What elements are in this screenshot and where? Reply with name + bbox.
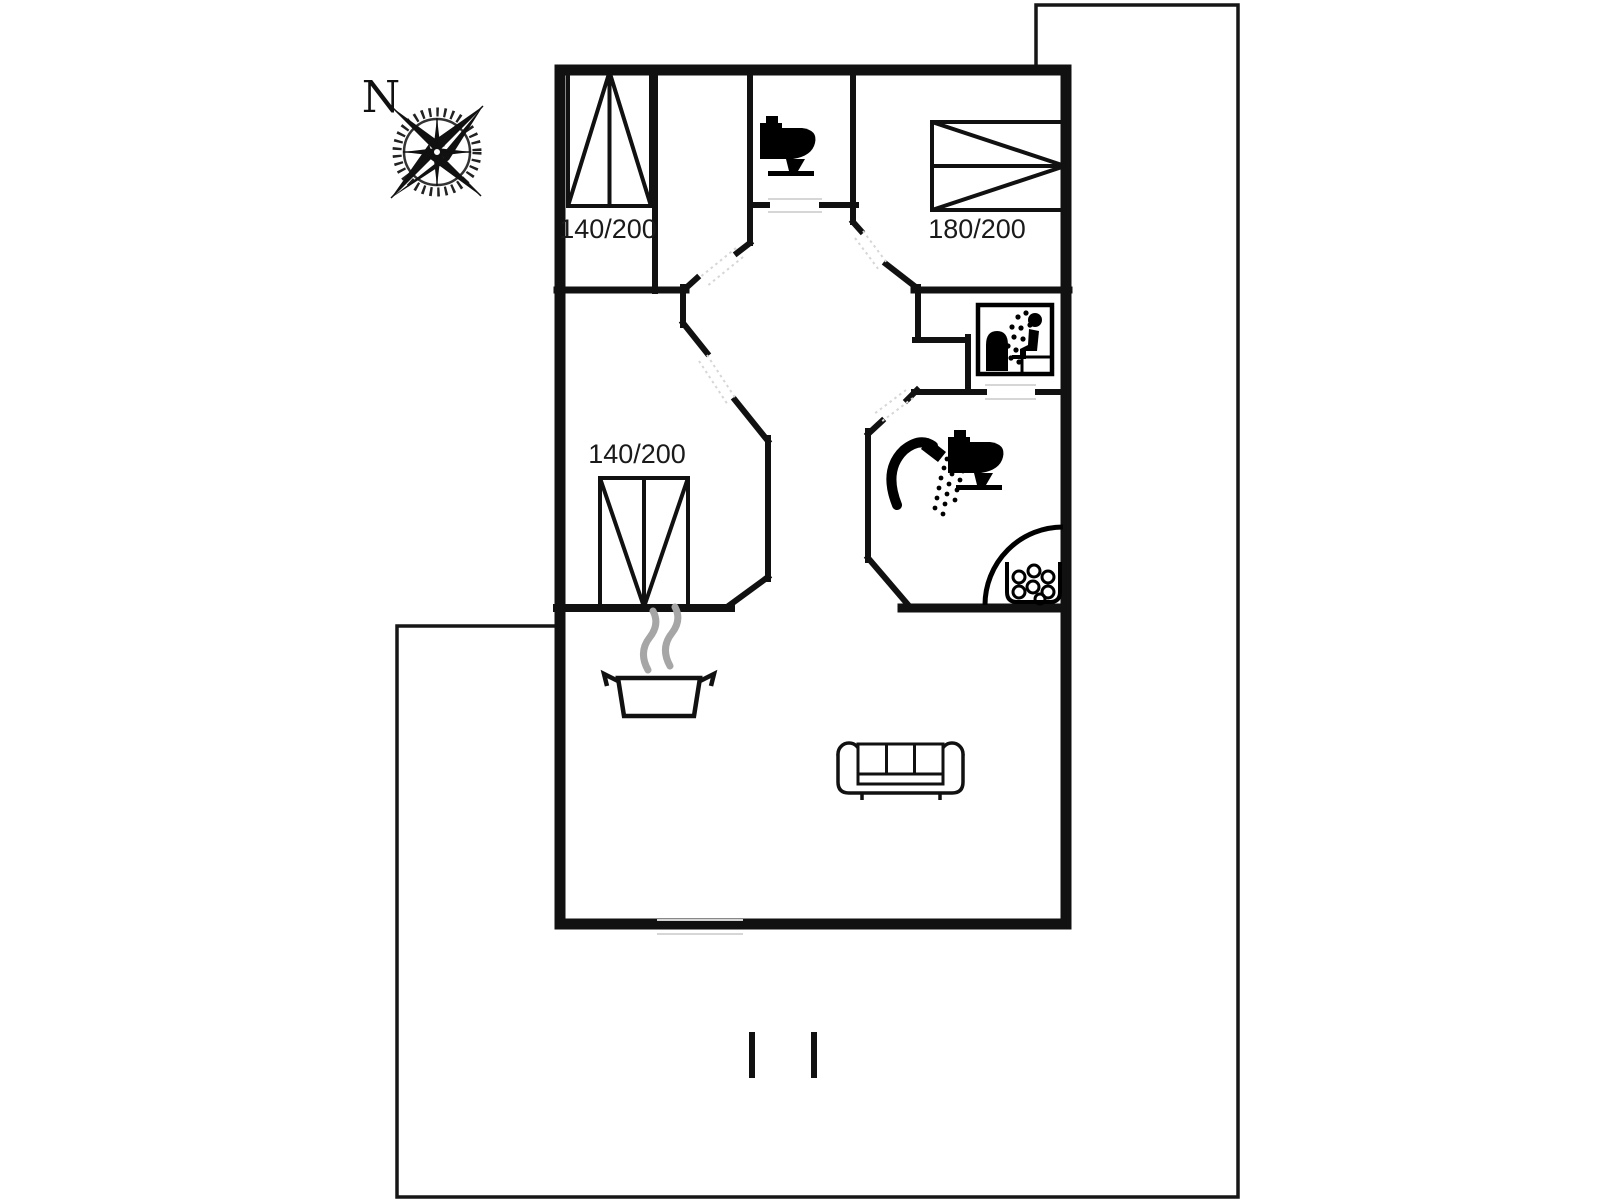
bed-icon-middle-left (600, 478, 688, 607)
bed-size-label-top-left: 140/200 (559, 214, 657, 244)
terrace-step-marks (752, 1032, 814, 1078)
hot-tub-icon (985, 527, 1063, 605)
floor-plan-page: 140/200 140/200 180/200 (0, 0, 1600, 1200)
bed-size-label-middle-left: 140/200 (588, 439, 686, 469)
toilet-icon-top (760, 116, 815, 176)
bed-icon-top-right (932, 122, 1065, 210)
bed-size-label-top-right: 180/200 (928, 214, 1026, 244)
stove-pot-icon (604, 607, 714, 716)
floor-plan-drawing: 140/200 140/200 180/200 (0, 0, 1600, 1200)
compass-north-label: N (362, 72, 401, 123)
bed-icon-top-left (568, 72, 651, 206)
compass-rose-icon (391, 106, 483, 198)
sauna-icon (978, 305, 1052, 374)
deck-outline (397, 5, 1238, 1197)
toilet-icon-bathroom (948, 430, 1003, 490)
sofa-icon (838, 743, 963, 800)
